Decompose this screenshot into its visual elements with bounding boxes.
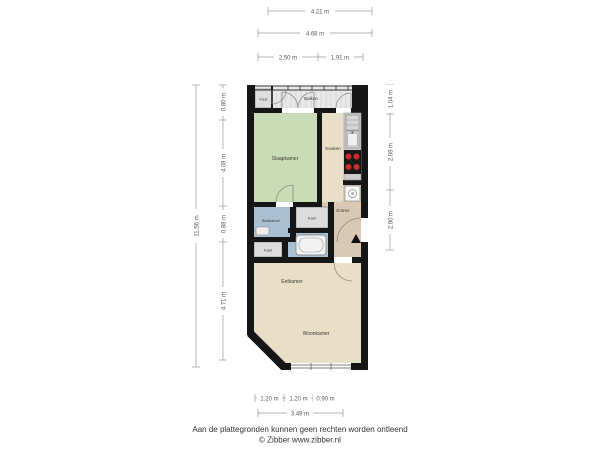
dim-left-4-71: 4.71 m xyxy=(221,292,227,310)
room-label-keuken: Keuken xyxy=(325,146,341,151)
footer-credit: © Zibber www.zibber.nl xyxy=(259,436,341,445)
dim-top-4-68: 4.68 m xyxy=(306,31,324,37)
dim-right-2-80: 2.80 m xyxy=(388,211,394,229)
slaapkamer-keuken-wall xyxy=(317,113,322,202)
room-label-kast-low: Kast xyxy=(264,248,273,253)
dim-top-1-91: 1.91 m xyxy=(331,55,349,61)
room-label-kast-top: Kast xyxy=(259,97,268,102)
kitchen-fixtures xyxy=(344,113,361,180)
dim-bottom-row1: 1.20 m 1.20 m 0.90 m xyxy=(255,394,338,402)
floor-plan: 4.21 m 4.68 m 2.50 m 1.91 m 11.56 m xyxy=(0,0,600,450)
room-label-eetkamer: Eetkamer xyxy=(281,279,303,285)
dim-left-0-80: 0.80 m xyxy=(221,93,227,111)
bottom-window xyxy=(291,363,351,370)
stove-icon xyxy=(344,150,361,174)
floorplan-page: 4.21 m 4.68 m 2.50 m 1.91 m 11.56 m xyxy=(0,0,600,450)
sink-icon xyxy=(346,131,359,148)
room-label-balkon: Balkon xyxy=(304,96,318,101)
room-label-kast-mid: Kast xyxy=(308,216,317,221)
room-label-entree: Entree xyxy=(336,208,350,213)
front-door-opening xyxy=(361,218,368,242)
dim-bottom-1-20b: 1.20 m xyxy=(289,396,307,402)
bathroom-sink-icon xyxy=(256,227,269,235)
dim-left-0-88: 0.88 m xyxy=(221,215,227,233)
dim-right-2-08: 2.08 m xyxy=(388,143,394,161)
dim-left-11-56: 11.56 m xyxy=(194,215,200,236)
dim-bottom-0-90: 0.90 m xyxy=(316,396,334,402)
bathtub-icon xyxy=(296,235,326,255)
dim-top-2-50: 2.50 m xyxy=(279,55,297,61)
dim-top-4-21: 4.21 m xyxy=(311,9,329,15)
dim-bottom-3-49: 3.49 m xyxy=(291,411,309,417)
room-label-badkamer: Badkamer xyxy=(262,218,281,223)
cabinet-icon xyxy=(346,115,359,130)
dim-bottom-1-20a: 1.20 m xyxy=(260,396,278,402)
dim-right-1-04: 1.04 m xyxy=(388,90,394,108)
footer-disclaimer: Aan de plattegronden kunnen geen rechten… xyxy=(192,425,407,434)
washing-machine-icon xyxy=(345,186,360,201)
dim-left-4-08: 4.08 m xyxy=(221,154,227,172)
room-label-woonkamer: Woonkamer xyxy=(303,331,330,337)
room-label-slaapkamer: Slaapkamer xyxy=(272,156,299,162)
